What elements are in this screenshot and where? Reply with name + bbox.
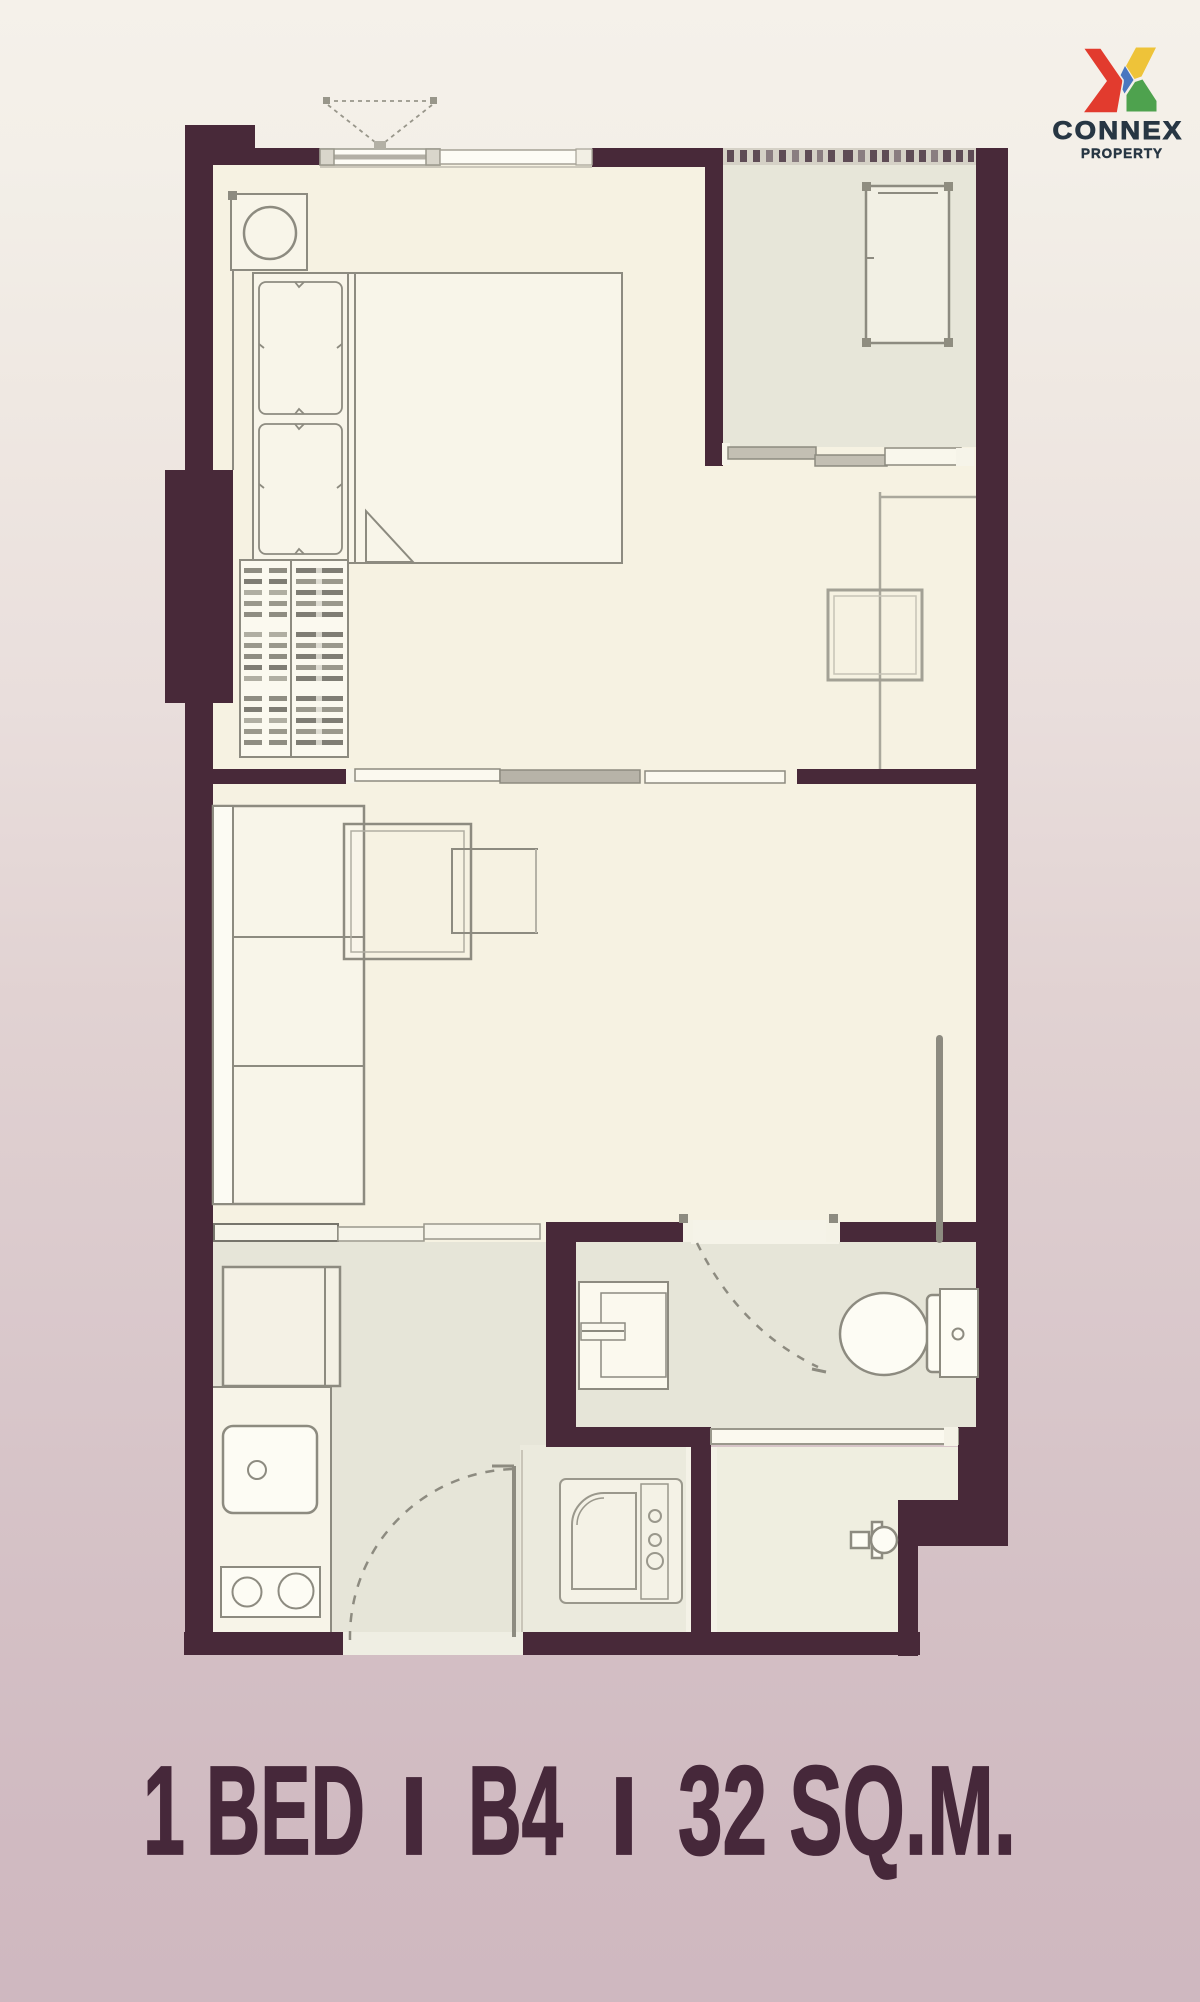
svg-text:B4: B4 [468, 1740, 563, 1881]
svg-text:CONNEX: CONNEX [1053, 117, 1184, 145]
svg-text:PROPERTY: PROPERTY [1081, 145, 1163, 161]
svg-text:1 BED: 1 BED [143, 1740, 365, 1881]
svg-text:32 SQ.M.: 32 SQ.M. [678, 1740, 1016, 1881]
